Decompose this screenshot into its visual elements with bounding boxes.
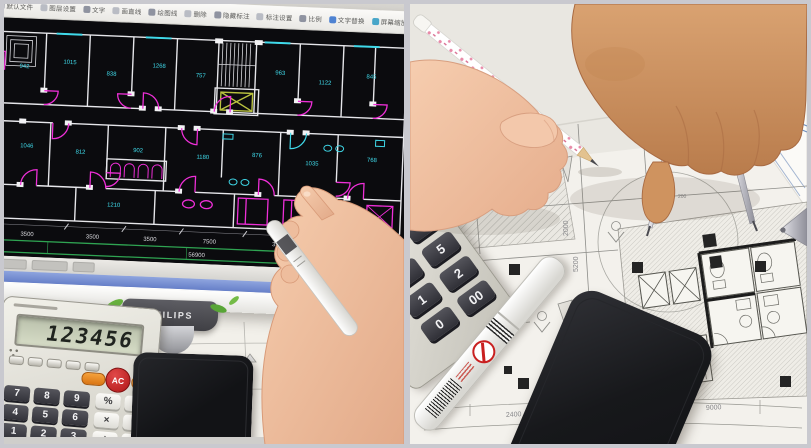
compass-tips (647, 221, 757, 236)
pencil-shadow (578, 167, 622, 177)
pointing-hand-overlay (4, 4, 404, 444)
left-photo-panel: 默认文件 图层设置 文字 画直线 绘图线 删除 隐藏标注 标注设置 比例 文字替… (4, 4, 404, 444)
hands-overlay (410, 4, 807, 444)
pencil-lead (590, 159, 600, 168)
pen-tip (780, 208, 807, 246)
photo-collage: 默认文件 图层设置 文字 画直线 绘图线 删除 隐藏标注 标注设置 比例 文字替… (0, 0, 811, 448)
hand-right (572, 4, 807, 175)
right-photo-panel: 2400 30700 9000 2000 5200 200 7 8 4 5 1 … (410, 4, 807, 444)
knuckle-shading (585, 47, 645, 81)
fingernail (304, 191, 311, 196)
